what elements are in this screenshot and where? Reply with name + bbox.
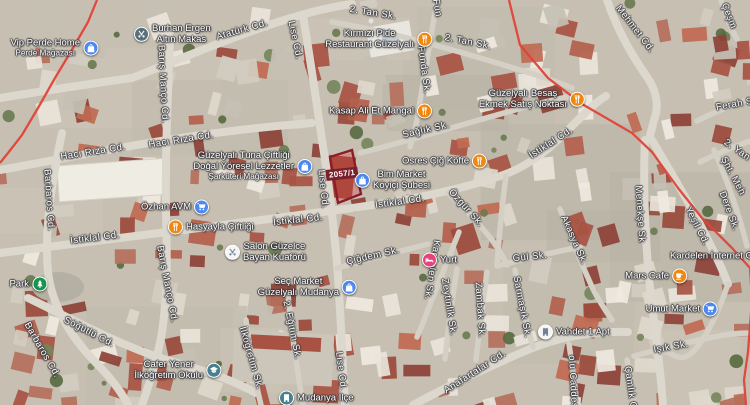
street-label-fun: Fun — [430, 0, 444, 18]
shopping-bag-icon — [342, 280, 357, 295]
poi-name-line: Salon Güzelce — [243, 241, 306, 252]
poi-name: Güzelyalı BesaşEkmek Satış Noktası — [479, 88, 567, 110]
poi-salon-guzelce[interactable]: Salon GüzelceBayan Kuaförü — [225, 241, 306, 263]
map-labels: 2057/1 Atatürk Cd.2. Tan Sk.2. Tan Sk.Me… — [0, 0, 750, 405]
street-label-akasya-sk: Akasya Sk. — [558, 214, 589, 266]
poi-sec-market[interactable]: Seç MarketGüzelyalı Mudanya — [258, 276, 357, 298]
street-label-isik-sk: Işık Sk. — [653, 339, 690, 356]
restaurant-icon — [570, 92, 585, 107]
scissors-icon — [225, 245, 240, 260]
street-label-2-egitim-sk: 2. Eğitim Sk. — [280, 300, 303, 361]
street-label-dere-sk: Dere Sk. — [717, 190, 742, 232]
poi-name-line: Vip Perde Home — [10, 38, 80, 49]
poi-name: Mars Cafe — [625, 270, 669, 281]
poi-bim-market[interactable]: Bim MarketKöyiçi Şubesi — [355, 169, 430, 191]
restaurant-icon — [472, 154, 487, 169]
poi-name: Hasyayla Çiftliği — [186, 221, 254, 232]
shopping-cart-icon — [194, 200, 209, 215]
street-label-gul-sk: Gül Sk. — [512, 250, 548, 265]
poi-name-line: Osres Çiğ Köfte — [402, 155, 469, 166]
street-label-lise-cd: Lise Cd. — [333, 351, 349, 391]
street-label-2-yan: 2. Yan — [722, 137, 750, 163]
parcel-number-label: 2057/1 — [325, 167, 358, 181]
poi-umut-market[interactable]: Umut Market — [646, 302, 718, 317]
street-label-zambak-sk: Zambak Sk. — [473, 282, 488, 338]
street-label-anafartalar-cd: Anafartalar Cd. — [442, 348, 508, 396]
restaurant-icon — [168, 220, 183, 235]
street-label-2-tan-sk: 2. Tan Sk. — [444, 32, 492, 52]
poi-name: Seç MarketGüzelyalı Mudanya — [258, 276, 339, 298]
poi-hasyayla-ciftligi[interactable]: Hasyayla Çiftliği — [168, 220, 254, 235]
poi-mars-cafe[interactable]: Mars Cafe — [625, 269, 687, 284]
map-canvas[interactable]: 2057/1 Atatürk Cd.2. Tan Sk.2. Tan Sk.Me… — [0, 0, 750, 405]
poi-name: Park — [9, 278, 29, 289]
street-label-baris-manco-cd: Barış Manço Cd. — [155, 45, 170, 124]
poi-name: Vip Perde HomePerde Mağazası — [10, 38, 80, 59]
poi-name-line: Bayan Kuaförü — [243, 252, 306, 263]
school-icon — [206, 363, 221, 378]
street-label-i-stiklal-cd: İstiklal Cd. — [70, 230, 121, 247]
tree-icon — [32, 277, 47, 292]
restaurant-icon — [417, 104, 432, 119]
street-label-2-tan-sk: 2. Tan Sk. — [349, 4, 397, 22]
poi-name-line: Kardelen İnternet Ca — [670, 250, 750, 261]
shopping-bag-icon — [83, 41, 98, 56]
street-label-cigdem-sk: Çiğdem Sk. — [345, 245, 400, 268]
street-label-mehmet-cd: Mehmet Cd. — [613, 3, 657, 54]
street-label-funda-sk: Funda Sk. — [415, 46, 433, 95]
poi-kardelen-i-nternet-ca[interactable]: Kardelen İnternet Ca — [670, 250, 750, 261]
poi-osres-cig-kofte[interactable]: Osres Çiğ Köfte — [402, 154, 487, 169]
poi-name-line: Kırmızı Pide — [325, 28, 414, 39]
shopping-cart-icon — [703, 302, 718, 317]
poi-name-line: Yurt — [440, 254, 457, 265]
street-label-i-lkogretim-sk: İlköğretim Sk. — [237, 325, 265, 390]
poi-name-line: Seç Market — [258, 276, 339, 287]
poi-name-line: Park — [9, 278, 29, 289]
poi-name-line: Perde Mağazası — [10, 49, 80, 59]
poi-name-line: Köyiçi Şubesi — [373, 180, 430, 191]
poi-name-line: İlköğretim Okulu — [134, 370, 203, 381]
street-label-i-stiklal-cd: İstiklal Cd. — [273, 212, 324, 228]
poi-name-line: Doğal Yöresel Lezzetler — [193, 161, 294, 172]
street-label-i-stiklal-cd: İstiklal Cd. — [375, 193, 426, 211]
poi-kasap-ali-et-mangal[interactable]: Kasap Ali Et Mangal — [329, 104, 432, 119]
street-label-barbaros-cd: Barbaros Cd. — [41, 169, 56, 232]
shopping-bag-icon — [297, 158, 312, 173]
street-label-haci-riza-cd: Hacı Rıza Cd. — [148, 129, 215, 150]
poi-name-line: Hasyayla Çiftliği — [186, 221, 254, 232]
street-label-olu-caddesi: olu Caddesi — [566, 355, 580, 405]
poi-name-line: Mars Cafe — [625, 270, 669, 281]
poi-name-line: Bim Market — [373, 169, 430, 180]
poi-name-line: Şarküteri Mağazası — [193, 172, 294, 182]
poi-name: Vahdet 1 Apt — [556, 326, 610, 337]
poi-vip-perde-home[interactable]: Vip Perde HomePerde Mağazası — [10, 38, 98, 59]
poi-yurt[interactable]: Yurt — [422, 253, 457, 268]
poi-name: Salon GüzelceBayan Kuaförü — [243, 241, 306, 263]
poi-name-line: Güzelyalı Tuna Çiftliği — [193, 150, 294, 161]
poi-name-line: Vahdet 1 Apt — [556, 326, 610, 337]
street-label-baris-manco-cd: Barış Manço Cd. — [154, 245, 180, 324]
poi-name: Osres Çiğ Köfte — [402, 155, 469, 166]
street-label-ferah-sk: Ferah Sk — [715, 95, 750, 113]
street-label-menekse-sk: Menekşe Sk — [633, 185, 648, 243]
poi-name: Kırmızı PideRestaurant Güzelyalı — [325, 28, 414, 50]
street-label-cesm: Çeşm — [719, 2, 739, 31]
street-label-sht-meh: Şht. Meh — [718, 155, 747, 197]
poi-name: Özhan AVM — [141, 201, 191, 212]
poi-name: Bim MarketKöyiçi Şubesi — [373, 169, 430, 191]
street-label-zeytinlik-sk: Zeytinlik Sk. — [439, 278, 459, 337]
poi-name: Mudanya İlçe — [297, 392, 354, 403]
poi-name: Yurt — [440, 254, 457, 265]
bed-icon — [422, 253, 437, 268]
street-label-lise-cd: Lise Cd. — [286, 20, 305, 60]
poi-name-line: Umut Market — [646, 303, 700, 314]
poi-name: Güzelyalı Tuna ÇiftliğiDoğal Yöresel Lez… — [193, 150, 294, 182]
poi-ozhan-avm[interactable]: Özhan AVM — [141, 200, 209, 215]
street-label-ozgur-sk: Özgür Sk. — [446, 187, 485, 229]
poi-name-line: Kasap Ali Et Mangal — [329, 105, 414, 116]
poi-name-line: Restaurant Güzelyalı — [325, 39, 414, 50]
poi-kirmizi-pide[interactable]: Kırmızı PideRestaurant Güzelyalı — [325, 28, 432, 50]
street-label-sogutlu-cd: Söğütlü Cd. — [62, 315, 116, 350]
street-label-i-stiklal-cd: İstiklal Cd. — [527, 125, 575, 161]
street-label-sarmasik-sk: Sarmaşık Sk. — [511, 275, 534, 338]
poi-name: Cafer Yenerİlköğretim Okulu — [134, 359, 203, 381]
building-icon — [279, 391, 294, 405]
poi-name-line: Altın Makas — [152, 34, 211, 45]
poi-name: Kasap Ali Et Mangal — [329, 105, 414, 116]
building-icon — [538, 325, 553, 340]
poi-guzelyali-tuna-ciftligi[interactable]: Güzelyalı Tuna ÇiftliğiDoğal Yöresel Lez… — [193, 150, 312, 182]
street-label-kardelen-sk: Kardelen Sk. — [422, 239, 442, 300]
poi-mudanya-i-lce[interactable]: Mudanya İlçe — [279, 391, 354, 405]
poi-name-line: Burhan Ergen — [152, 23, 211, 34]
poi-name: Umut Market — [646, 303, 700, 314]
street-label-camlik-cd: Çamlık Cd. — [622, 365, 640, 405]
poi-park[interactable]: Park — [9, 277, 47, 292]
street-label-yesil-cd: Yeşil Cd. — [683, 205, 712, 247]
scissors-icon — [134, 27, 149, 42]
shopping-bag-icon — [355, 173, 370, 188]
street-label-saglik-sk: Sağlık Sk. — [401, 119, 450, 140]
poi-name-line: Özhan AVM — [141, 201, 191, 212]
poi-name-line: Mudanya İlçe — [297, 392, 354, 403]
street-label-haci-riza-cd: Hacı Rıza Cd. — [60, 141, 127, 162]
street-label-barbaros-cd: Barbaros Cd. — [22, 320, 63, 379]
poi-name: Kardelen İnternet Ca — [670, 250, 750, 261]
poi-burhan-ergen[interactable]: Burhan ErgenAltın Makas — [134, 23, 211, 45]
poi-cafer-yener[interactable]: Cafer Yenerİlköğretim Okulu — [134, 359, 221, 381]
poi-name-line: Güzelyalı Mudanya — [258, 287, 339, 298]
poi-name-line: Cafer Yener — [134, 359, 203, 370]
poi-vahdet-1-apt[interactable]: Vahdet 1 Apt — [538, 325, 610, 340]
poi-guzelyali-besas[interactable]: Güzelyalı BesaşEkmek Satış Noktası — [479, 88, 585, 110]
poi-name-line: Ekmek Satış Noktası — [479, 99, 567, 110]
poi-name: Burhan ErgenAltın Makas — [152, 23, 211, 45]
cafe-icon — [672, 269, 687, 284]
restaurant-icon — [417, 32, 432, 47]
street-label-ataturk-cd: Atatürk Cd. — [215, 17, 269, 42]
poi-name-line: Güzelyalı Besaş — [479, 88, 567, 99]
